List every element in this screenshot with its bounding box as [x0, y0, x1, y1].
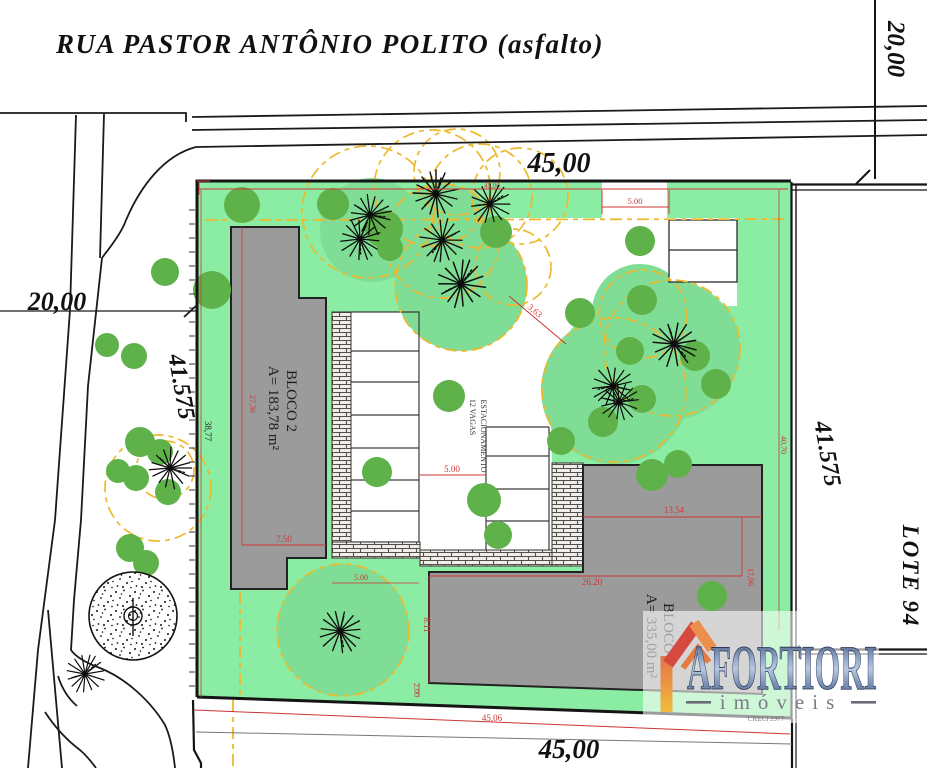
svg-text:26.20: 26.20: [582, 577, 603, 587]
svg-text:5.00: 5.00: [444, 464, 460, 474]
svg-text:imóveis: imóveis: [720, 690, 843, 714]
svg-text:20,00: 20,00: [882, 20, 909, 78]
svg-text:RUA PASTOR ANTÔNIO POLITO: RUA PASTOR ANTÔNIO POLITO (asfalto): [55, 29, 604, 59]
svg-text:5.00: 5.00: [354, 573, 368, 582]
svg-text:LOTE 94: LOTE 94: [898, 524, 923, 628]
svg-text:BLOCO 2: BLOCO 2: [283, 370, 299, 432]
svg-text:2.00: 2.00: [412, 683, 421, 697]
svg-text:45,00: 45,00: [538, 734, 600, 764]
svg-text:7.50: 7.50: [276, 534, 292, 544]
svg-text:CRECI 2977: CRECI 2977: [748, 715, 785, 723]
svg-text:5.00: 5.00: [628, 196, 643, 206]
svg-text:12 VAGAS: 12 VAGAS: [468, 399, 477, 435]
svg-text:13.54: 13.54: [664, 505, 685, 515]
svg-text:27,36: 27,36: [248, 395, 257, 413]
svg-text:40,70: 40,70: [779, 436, 788, 454]
svg-text:20,00: 20,00: [27, 287, 87, 316]
svg-text:17,96: 17,96: [746, 568, 755, 586]
svg-text:45,06: 45,06: [482, 713, 503, 723]
svg-text:38,77: 38,77: [203, 421, 213, 442]
svg-text:ESTACIONAMENTO: ESTACIONAMENTO: [479, 400, 488, 473]
svg-text:8.11: 8.11: [422, 617, 432, 632]
svg-text:45,00: 45,00: [484, 182, 500, 190]
svg-text:A= 183,78 m²: A= 183,78 m²: [265, 366, 281, 451]
svg-text:45,00: 45,00: [527, 148, 591, 179]
